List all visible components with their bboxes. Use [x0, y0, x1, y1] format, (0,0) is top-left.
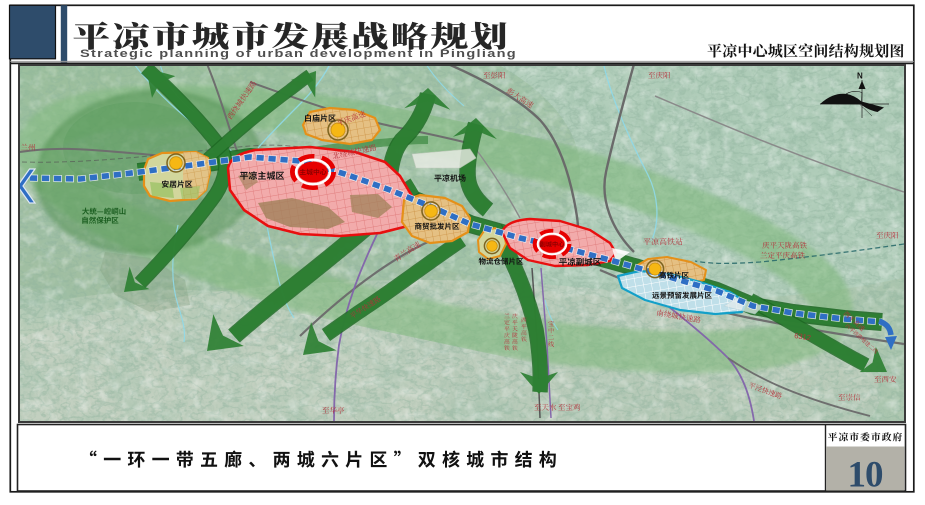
svg-text:10: 10: [848, 455, 884, 496]
svg-text:Strategic planning of urban de: Strategic planning of urban development …: [80, 48, 517, 60]
svg-text:N: N: [857, 72, 863, 81]
